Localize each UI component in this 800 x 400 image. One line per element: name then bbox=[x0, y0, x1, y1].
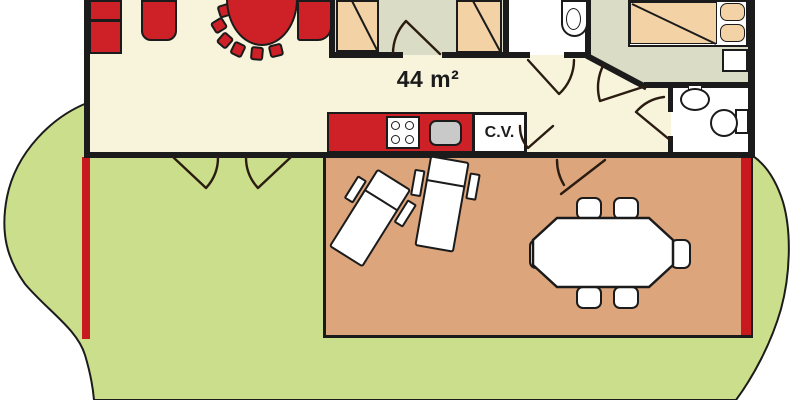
toilet-bowl bbox=[710, 109, 738, 137]
wall-bathroom-left-a bbox=[668, 88, 673, 112]
area-label: 44 m² bbox=[378, 66, 478, 93]
cv-closet: C.V. bbox=[472, 112, 527, 154]
bed-double-blanket bbox=[630, 2, 717, 44]
stove-burner-1 bbox=[391, 121, 400, 130]
washbasin-bowl bbox=[566, 8, 581, 30]
kitchen-counter bbox=[327, 112, 474, 153]
sofa bbox=[89, 0, 122, 54]
stove-burner-4 bbox=[405, 135, 414, 144]
nightstand bbox=[722, 49, 748, 72]
kitchen-sink bbox=[429, 120, 462, 146]
stove-burner-2 bbox=[405, 121, 414, 130]
property-line-left bbox=[82, 157, 90, 339]
armchair bbox=[141, 0, 177, 41]
bed-single-2 bbox=[456, 0, 502, 53]
floorplan-canvas: C.V. bbox=[0, 0, 800, 400]
bathroom-sink bbox=[680, 88, 710, 111]
wall-washroom-left bbox=[503, 0, 509, 58]
patio-chair-2 bbox=[613, 197, 639, 220]
property-line-terrace-right bbox=[741, 158, 751, 335]
patio-chair-1 bbox=[576, 197, 602, 220]
pillow-1 bbox=[720, 3, 745, 21]
stove bbox=[386, 116, 420, 149]
dining-chair-5 bbox=[250, 46, 264, 61]
bed-single-1 bbox=[336, 0, 379, 52]
pillow-2 bbox=[720, 24, 745, 42]
patio-chair-5 bbox=[529, 239, 550, 269]
cv-label: C.V. bbox=[485, 124, 515, 142]
patio-chair-4 bbox=[613, 286, 639, 309]
wall-exterior-right bbox=[748, 0, 755, 157]
storage-cabinet bbox=[297, 0, 332, 41]
wall-bedroom-twin-bottom-a bbox=[329, 52, 403, 58]
wall-bathroom-left-b bbox=[668, 136, 673, 154]
patio-chair-3 bbox=[576, 286, 602, 309]
patio-chair-6 bbox=[670, 239, 691, 269]
stove-burner-3 bbox=[391, 135, 400, 144]
sofa-cushion-divider bbox=[91, 19, 120, 22]
wall-washroom-bottom-a bbox=[508, 52, 530, 58]
washbasin bbox=[561, 0, 588, 37]
